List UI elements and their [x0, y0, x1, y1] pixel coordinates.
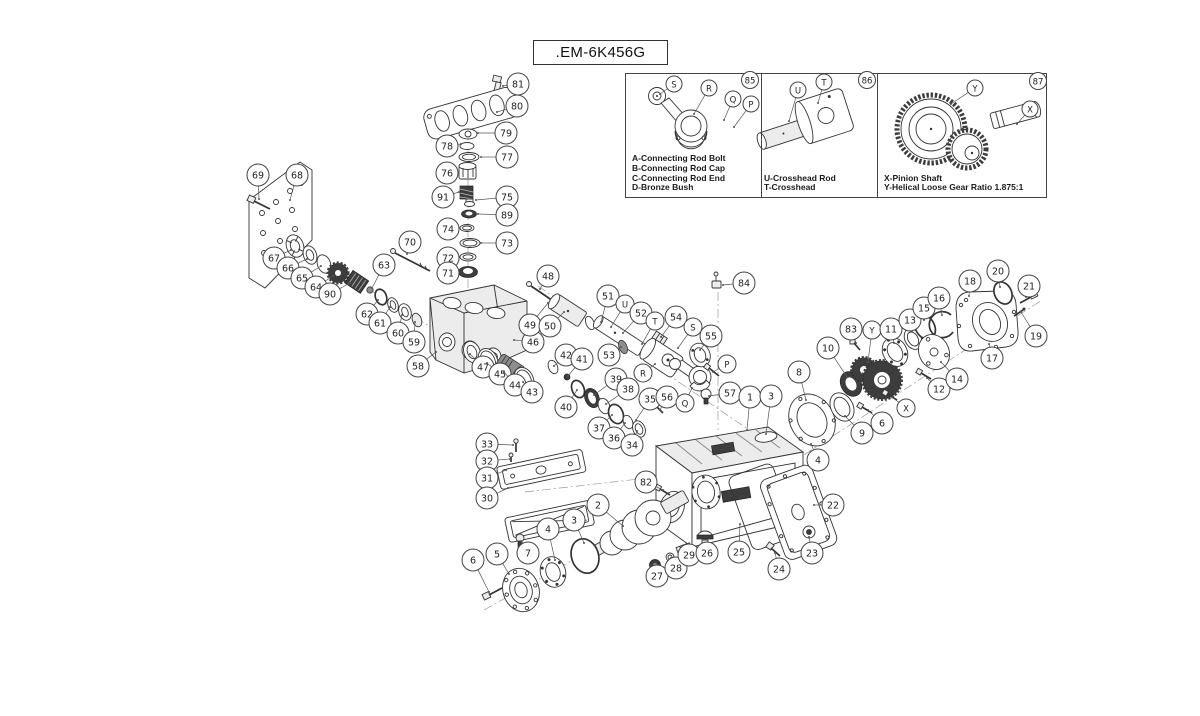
drain-plug [516, 534, 524, 547]
valve-stack [459, 129, 481, 278]
drawing-number: .EM-6K456G [556, 44, 646, 61]
bearing-end-group [482, 535, 603, 616]
inset-crosshead-art [750, 87, 855, 159]
crosshead-legend: U-Crosshead Rod T-Crosshead [764, 174, 836, 193]
exploded-parts-diagram: .EM-6K456G [0, 0, 1200, 716]
legend-line: D-Bronze Bush [632, 183, 725, 193]
plunger-packing-set [283, 232, 424, 328]
head-stud [391, 249, 431, 272]
inset-pinion-art [897, 95, 1042, 168]
connecting-rod-legend: A-Connecting Rod Bolt B-Connecting Rod C… [632, 154, 725, 193]
legend-line: Y-Helical Loose Gear Ratio 1.875:1 [884, 183, 1023, 193]
crosshead-seal-set [582, 386, 663, 439]
back-plate [249, 162, 312, 288]
plunger-rod-assembly [527, 272, 722, 404]
inset-panels: A-Connecting Rod Bolt B-Connecting Rod C… [625, 73, 1047, 198]
gear-train [825, 279, 1038, 425]
legend-line: T-Crosshead [764, 183, 836, 193]
inset-divider-2 [877, 74, 878, 197]
inset-divider-1 [761, 74, 762, 197]
drawing-number-box: .EM-6K456G [533, 40, 668, 65]
pinion-legend: X-Pinion Shaft Y-Helical Loose Gear Rati… [884, 174, 1023, 193]
cover-plate-screws [509, 439, 518, 462]
inset-connecting-rod-art [649, 88, 708, 149]
